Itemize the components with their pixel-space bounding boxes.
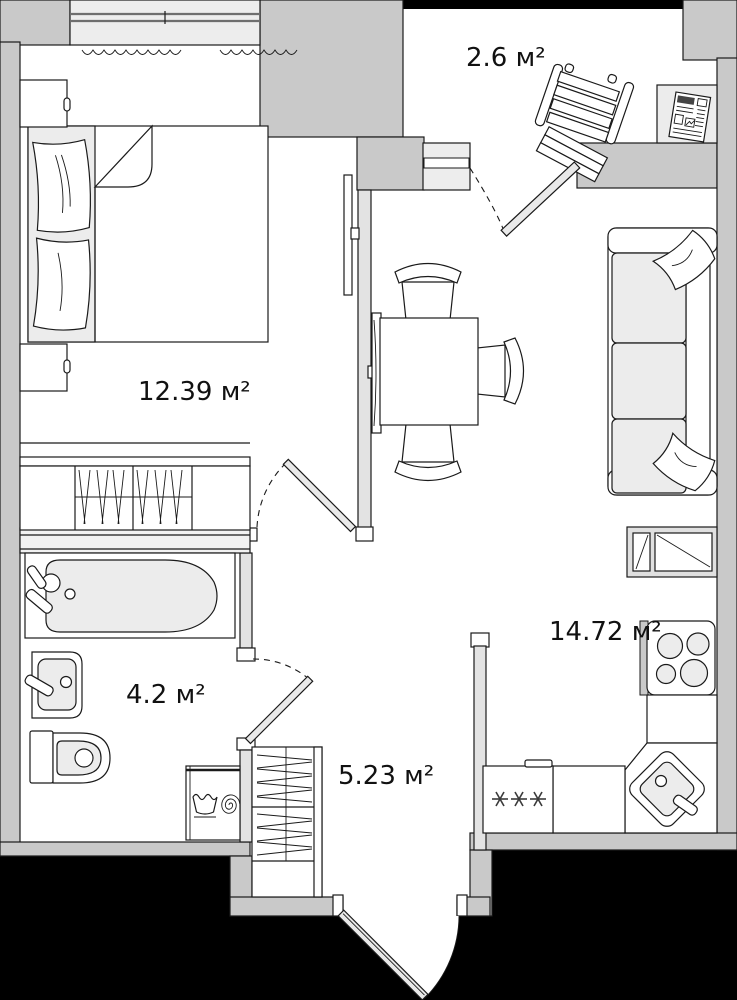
room-area-label-balcony: 2.6 м² [466, 43, 546, 73]
room-area-label-kitchen-living: 14.72 м² [549, 617, 662, 647]
bathroom-top-wall [20, 528, 250, 553]
window-icon [70, 0, 260, 45]
sofa-icon [608, 228, 719, 495]
floor-plan-canvas: 12.39 м² 2.6 м² 4.2 м² 5.23 м² 14.72 м² [0, 0, 737, 1000]
nightstand-icon [20, 344, 70, 391]
bathtub-icon [25, 553, 235, 638]
side-table [657, 85, 717, 143]
room-area-label-bathroom: 4.2 м² [126, 680, 206, 710]
nightstand-icon [20, 80, 70, 127]
washbasin-icon [24, 652, 82, 718]
bed-icon [28, 126, 268, 342]
room-area-label-bedroom: 12.39 м² [138, 377, 251, 407]
toilet-icon [30, 731, 110, 783]
washing-machine-icon [186, 766, 240, 840]
kitchen-cabinet-icon [627, 527, 717, 577]
floor-plan: 12.39 м² 2.6 м² 4.2 м² 5.23 м² 14.72 м² [0, 0, 737, 1000]
pillow-icon [33, 140, 93, 234]
hallway-wardrobe-icon [252, 747, 322, 897]
fridge-snowflakes-icon [483, 760, 553, 833]
room-area-label-hallway: 5.23 м² [338, 761, 434, 791]
pillow-icon [33, 238, 91, 331]
newspaper-icon [669, 92, 711, 142]
